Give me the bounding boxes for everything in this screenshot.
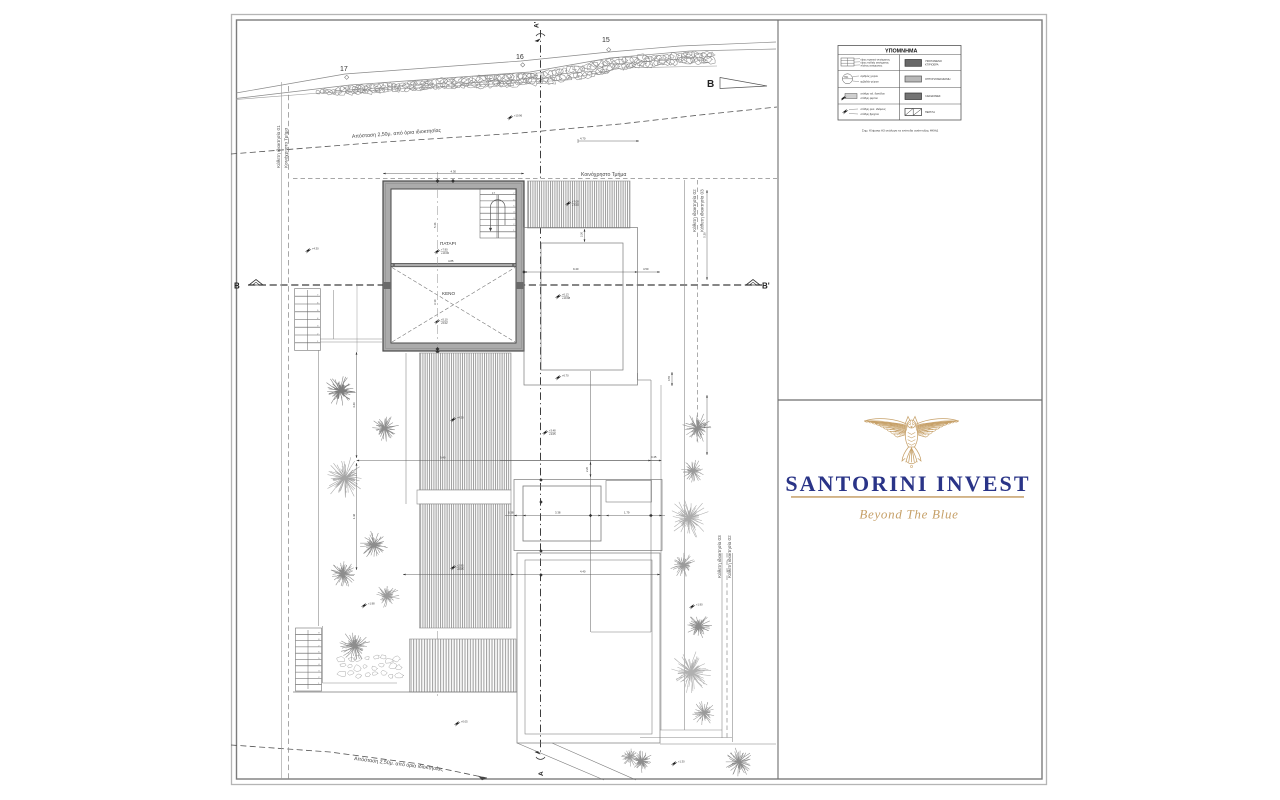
svg-text:4.85: 4.85 — [448, 259, 454, 263]
svg-text:4.40: 4.40 — [580, 570, 586, 574]
svg-text:17: 17 — [340, 66, 348, 73]
svg-text:5.46: 5.46 — [433, 222, 437, 228]
svg-text:ΚΤΙΡΙΟΕΡΑ: ΚΤΙΡΙΟΕΡΑ — [925, 62, 939, 66]
svg-text:15: 15 — [602, 37, 610, 44]
svg-text:0.38: 0.38 — [508, 511, 514, 515]
svg-text:4.30: 4.30 — [451, 169, 457, 173]
svg-text:B': B' — [762, 282, 770, 291]
svg-text:+10.98: +10.98 — [562, 296, 571, 300]
svg-text:+5.02: +5.02 — [441, 321, 448, 325]
svg-text:Κοινόχρηστο Τμήμα: Κοινόχρηστο Τμήμα — [581, 171, 626, 178]
svg-text:Κάθετη ιδιοκτησία 02: Κάθετη ιδιοκτησία 02 — [691, 189, 697, 232]
svg-text:Κάθετη ιδιοκτησία 02: Κάθετη ιδιοκτησία 02 — [726, 535, 732, 578]
svg-text:9.40: 9.40 — [440, 456, 446, 460]
svg-text:Κάθετη ιδιοκτησία 03: Κάθετη ιδιοκτησία 03 — [716, 535, 722, 578]
svg-text:ΟΠΤΟΠΛΙΝΘΟΔΟΜΗ: ΟΠΤΟΠΛΙΝΘΟΔΟΜΗ — [925, 77, 950, 81]
svg-text:+1.98: +1.98 — [368, 602, 375, 606]
svg-text:1.46: 1.46 — [352, 513, 356, 519]
svg-text:ΛΙΘΟΔΟΜΕΣ: ΛΙΘΟΔΟΜΕΣ — [925, 94, 941, 98]
svg-text:στάθμη φερτού: στάθμη φερτού — [861, 96, 879, 100]
svg-text:ΥΠΟΜΝΗΜΑ: ΥΠΟΜΝΗΜΑ — [885, 49, 917, 55]
svg-text:0.45: 0.45 — [651, 455, 657, 459]
svg-text:ΚΕΝΟ: ΚΕΝΟ — [442, 291, 455, 296]
svg-text:Beyond The Blue: Beyond The Blue — [859, 507, 958, 522]
svg-text:+4.30: +4.30 — [312, 247, 319, 251]
svg-text:B: B — [234, 282, 240, 291]
svg-text:+10.00: +10.00 — [441, 251, 450, 255]
svg-text:στάθμη βρεχτού: στάθμη βρεχτού — [861, 112, 880, 116]
svg-text:+4.30: +4.30 — [457, 416, 464, 420]
svg-text:4.50: 4.50 — [643, 267, 649, 271]
svg-text:1.79: 1.79 — [624, 511, 630, 515]
svg-text:Κάθετη ιδιοκτησία 01: Κάθετη ιδιοκτησία 01 — [275, 125, 281, 168]
svg-text:+0.05: +0.05 — [457, 567, 464, 571]
svg-text:+7.00: +7.00 — [572, 203, 579, 207]
svg-text:SANTORINI INVEST: SANTORINI INVEST — [785, 471, 1030, 496]
svg-text:+0.05: +0.05 — [461, 720, 468, 724]
svg-text:αριθμός χώρου: αριθμός χώρου — [861, 74, 879, 78]
svg-text:9.40: 9.40 — [573, 267, 579, 271]
svg-text:Κάθετη ιδιοκτησία 03: Κάθετη ιδιοκτησία 03 — [699, 189, 705, 232]
svg-text:πλάτος ανοίγματος: πλάτος ανοίγματος — [861, 64, 883, 68]
svg-text:B: B — [707, 79, 714, 90]
svg-text:+10.96: +10.96 — [514, 114, 523, 118]
svg-text:4.46: 4.46 — [352, 402, 356, 408]
svg-text:στάθμη τελ. δαπέδου: στάθμη τελ. δαπέδου — [861, 92, 886, 96]
svg-text:+6.70: +6.70 — [562, 374, 569, 378]
svg-text:A: A — [538, 771, 545, 776]
svg-text:ΠΑΤΑΡΙ: ΠΑΤΑΡΙ — [440, 241, 456, 246]
svg-text:4.70: 4.70 — [580, 137, 586, 141]
svg-text:Π01: Π01 — [844, 76, 849, 79]
svg-text:+1.90: +1.90 — [696, 603, 703, 607]
svg-text:5.30: 5.30 — [703, 232, 707, 238]
svg-text:2.20: 2.20 — [580, 231, 584, 237]
svg-text:+3.05: +3.05 — [549, 432, 556, 436]
svg-text:ΥΦΙΣΤΑΜΕΝΟ: ΥΦΙΣΤΑΜΕΝΟ — [925, 59, 942, 63]
svg-text:ΠΕΡΓΛΑ: ΠΕΡΓΛΑ — [925, 110, 935, 114]
svg-text:Κοινόχρηστο Τμήμα: Κοινόχρηστο Τμήμα — [283, 127, 289, 168]
svg-text:3.38: 3.38 — [555, 511, 561, 515]
svg-text:3.10: 3.10 — [433, 299, 437, 305]
svg-text:4.30: 4.30 — [703, 422, 707, 428]
svg-text:0.55: 0.55 — [667, 375, 671, 381]
svg-text:16: 16 — [516, 54, 524, 61]
svg-text:+1.30: +1.30 — [678, 760, 685, 764]
svg-text:A': A' — [534, 21, 541, 28]
svg-text:στάθμη φυσ. εδάφους: στάθμη φυσ. εδάφους — [861, 107, 887, 111]
svg-text:Σημ. Κλίμακα Α3 ανάλογα τα επί: Σημ. Κλίμακα Α3 ανάλογα τα επίπεδα ανάπτ… — [862, 129, 938, 133]
svg-text:εμβαδόν χώρου: εμβαδόν χώρου — [861, 80, 880, 84]
svg-text:2.20: 2.20 — [585, 466, 589, 472]
